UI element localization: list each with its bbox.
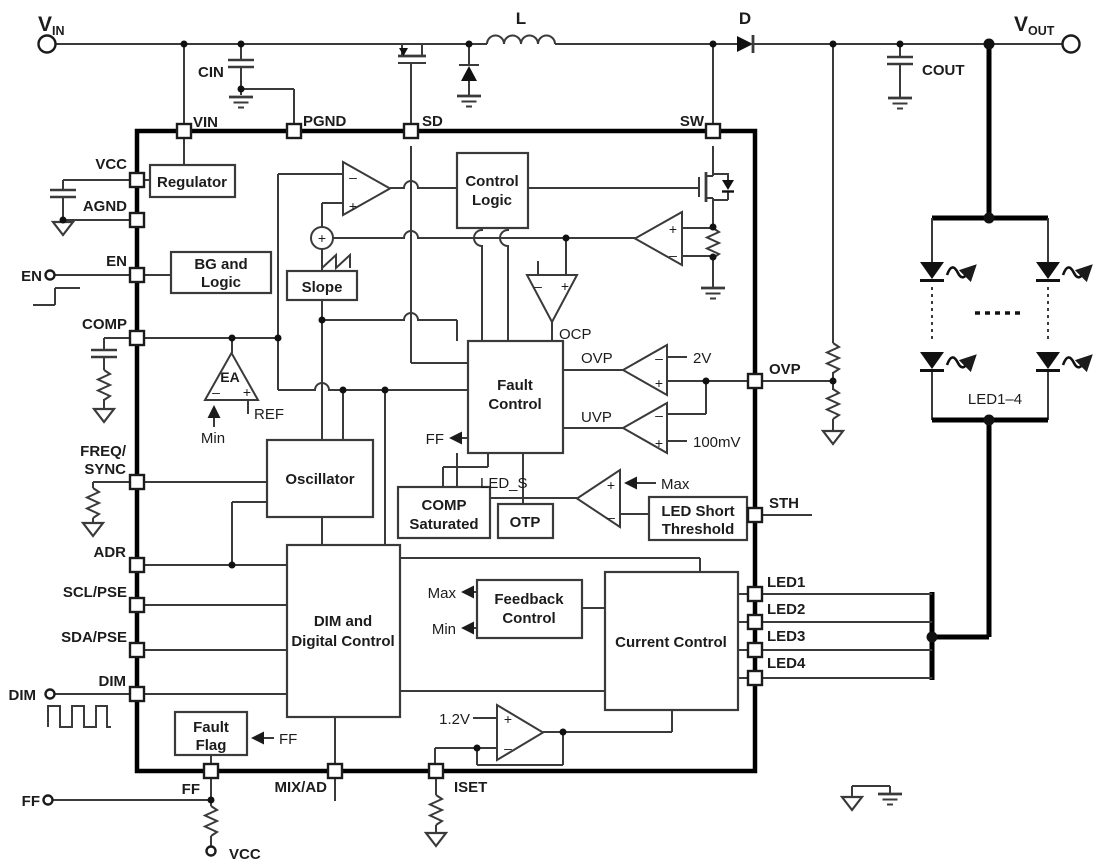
ground-icon xyxy=(457,96,481,107)
led-icon xyxy=(1036,352,1091,371)
plus-mark: + xyxy=(655,375,663,391)
regulator-label: Regulator xyxy=(157,174,227,191)
slope-label: Slope xyxy=(302,279,343,296)
comp-external-network xyxy=(91,338,137,422)
dim-external-network xyxy=(48,694,137,727)
dim-terminal xyxy=(46,690,55,699)
max-fb-label: Max xyxy=(428,585,457,602)
otp-label: OTP xyxy=(510,514,541,531)
schematic-canvas: VIN VOUT L D CIN COUT VIN PGND SD SW VCC… xyxy=(0,0,1100,863)
pin-label-iset: ISET xyxy=(454,779,487,796)
ground-tie-symbol xyxy=(842,786,902,810)
ovp-top-resistor-icon xyxy=(827,343,839,373)
fault-flag-label-1: Fault xyxy=(193,719,229,736)
pin-sth xyxy=(748,508,762,522)
dim-digital-label-1: DIM and xyxy=(314,613,372,630)
pin-label-sd: SD xyxy=(422,113,443,130)
dim-digital-label-2: Digital Control xyxy=(291,633,394,650)
diode-label: D xyxy=(739,9,751,28)
min-ea-label: Min xyxy=(201,430,225,447)
plus-mark: + xyxy=(655,435,663,451)
plus-mark: + xyxy=(243,384,251,400)
oscillator-label: Oscillator xyxy=(285,471,354,488)
pin-label-comp: COMP xyxy=(82,316,127,333)
plus-mark: + xyxy=(504,711,512,727)
inductor-icon xyxy=(487,36,555,45)
pin-led4 xyxy=(748,671,762,685)
pin-label-sth: STH xyxy=(769,495,799,512)
fault-control-label-1: Fault xyxy=(497,377,533,394)
pin-sda-pse xyxy=(130,643,144,657)
ovp-bottom-resistor-icon xyxy=(827,389,839,419)
fault-control-label-2: Control xyxy=(488,396,541,413)
pin-led1 xyxy=(748,587,762,601)
minus-mark: – xyxy=(534,278,542,294)
pin-label-dim: DIM xyxy=(99,673,127,690)
comp-saturated-label-1: COMP xyxy=(422,497,467,514)
pin-label-ovp: OVP xyxy=(769,361,801,378)
led-icon xyxy=(920,352,975,371)
led-icon xyxy=(920,262,975,281)
freq-ground-icon xyxy=(83,523,103,536)
pin-label-sda: SDA/PSE xyxy=(61,629,127,646)
comp-resistor-icon xyxy=(98,370,110,400)
vcc-terminal xyxy=(207,847,216,856)
pin-sw xyxy=(706,124,720,138)
sense-ground-icon xyxy=(701,288,725,299)
minus-mark: – xyxy=(212,384,220,400)
control-logic-block xyxy=(457,153,528,228)
pin-label-led3: LED3 xyxy=(767,628,805,645)
comp-ground-icon xyxy=(94,409,114,422)
pin-agnd xyxy=(130,213,144,227)
pin-pgnd xyxy=(287,124,301,138)
pin-vcc xyxy=(130,173,144,187)
internal-wires xyxy=(137,146,932,765)
minus-mark: – xyxy=(655,350,663,366)
vout-label: VOUT xyxy=(1014,13,1055,38)
ref-label: REF xyxy=(254,406,284,423)
pin-ovp xyxy=(748,374,762,388)
pin-label-vcc: VCC xyxy=(95,156,127,173)
ocp-label: OCP xyxy=(559,326,592,343)
dim-external-label: DIM xyxy=(9,687,37,704)
pin-comp xyxy=(130,331,144,345)
pin-freq-sync xyxy=(130,475,144,489)
control-logic-label-2: Logic xyxy=(472,192,512,209)
iset-ground-icon xyxy=(426,833,446,846)
feedback-label-1: Feedback xyxy=(494,591,564,608)
pin-label-led2: LED2 xyxy=(767,601,805,618)
bg-logic-label-1: BG and xyxy=(194,256,247,273)
freq-resistor-icon xyxy=(87,488,99,518)
plus-mark: + xyxy=(669,221,677,237)
power-ground-icon xyxy=(878,794,902,805)
pin-adr xyxy=(130,558,144,572)
vcc-external-label: VCC xyxy=(229,846,261,863)
ff-out-label: FF xyxy=(426,431,444,448)
rectifier-diode-icon xyxy=(737,35,753,53)
cout-ground-icon xyxy=(888,98,912,109)
cin-label: CIN xyxy=(198,64,224,81)
pin-led3 xyxy=(748,643,762,657)
plus-mark: + xyxy=(561,278,569,294)
led-short-label-2: Threshold xyxy=(662,521,735,538)
inductor-label: L xyxy=(516,9,526,28)
ff-terminal xyxy=(44,796,53,805)
vin-terminal xyxy=(39,36,56,53)
analog-ground-icon xyxy=(842,797,862,810)
pin-label-freq1: FREQ/ xyxy=(80,443,127,460)
iset-resistor-icon xyxy=(430,795,442,825)
cout-label: COUT xyxy=(922,62,965,79)
pin-label-vin: VIN xyxy=(193,114,218,131)
pin-label-scl: SCL/PSE xyxy=(63,584,127,601)
ff-in-label: FF xyxy=(279,731,297,748)
minus-mark: – xyxy=(349,169,357,185)
max-leds-label: Max xyxy=(661,476,690,493)
ff-pullup-resistor-icon xyxy=(205,806,217,836)
vin-label: VIN xyxy=(38,13,65,38)
pin-label-agnd: AGND xyxy=(83,198,127,215)
en-terminal xyxy=(46,271,55,280)
led-array-label: LED1–4 xyxy=(968,391,1022,408)
uvp-ref-label: 100mV xyxy=(693,434,741,451)
vcc-capacitor-icon xyxy=(50,190,76,197)
feedback-label-2: Control xyxy=(502,610,555,627)
led-s-label: LED_S xyxy=(480,475,528,492)
comp-capacitor-icon xyxy=(91,350,117,357)
pin-label-mixad: MIX/AD xyxy=(275,779,328,796)
ff-external-label: FF xyxy=(22,793,40,810)
cin-capacitor-icon xyxy=(228,60,254,67)
pin-iset xyxy=(429,764,443,778)
ovp-signal-label: OVP xyxy=(581,350,613,367)
led-short-label-1: LED Short xyxy=(661,503,734,520)
fault-flag-label-2: Flag xyxy=(196,737,227,754)
pin-label-en: EN xyxy=(106,253,127,270)
sawtooth-icon xyxy=(322,255,350,268)
cin-ground-icon xyxy=(229,97,253,108)
cout-capacitor-icon xyxy=(887,57,913,64)
led-icon xyxy=(1036,262,1091,281)
feedback-control-block xyxy=(477,580,582,638)
block-diagram: VIN VOUT L D CIN COUT VIN PGND SD SW VCC… xyxy=(0,0,1100,863)
iset-external-network xyxy=(426,779,446,846)
pin-sd xyxy=(404,124,418,138)
pin-dim xyxy=(130,687,144,701)
pin-label-pgnd: PGND xyxy=(303,113,347,130)
pin-label-sw: SW xyxy=(680,113,705,130)
vout-terminal xyxy=(1063,36,1080,53)
en-external-label: EN xyxy=(21,268,42,285)
control-logic-label-1: Control xyxy=(465,173,518,190)
dim-digital-control-block xyxy=(287,545,400,717)
led-string-network xyxy=(920,218,1091,680)
minus-mark: – xyxy=(655,407,663,423)
error-amp-label: EA xyxy=(220,369,239,385)
plus-mark: + xyxy=(349,198,357,214)
bg-logic-label-2: Logic xyxy=(201,274,241,291)
pin-led2 xyxy=(748,615,762,629)
plus-mark: + xyxy=(607,477,615,493)
uvp-signal-label: UVP xyxy=(581,409,612,426)
pin-label-led4: LED4 xyxy=(767,655,806,672)
minus-mark: – xyxy=(669,247,677,263)
minus-mark: – xyxy=(504,740,512,756)
pin-label-freq2: SYNC xyxy=(84,461,126,478)
pin-label-adr: ADR xyxy=(94,544,127,561)
current-control-label: Current Control xyxy=(615,634,727,651)
min-fb-label: Min xyxy=(432,621,456,638)
ovp-ground-icon xyxy=(823,431,843,444)
agnd-ground-icon xyxy=(53,222,73,235)
comp-saturated-label-2: Saturated xyxy=(409,516,478,533)
plus-mark: + xyxy=(318,230,326,246)
minus-mark: – xyxy=(607,509,615,525)
pin-ff xyxy=(204,764,218,778)
pin-mix-ad xyxy=(328,764,342,778)
iset-ref-label: 1.2V xyxy=(439,711,470,728)
pin-scl-pse xyxy=(130,598,144,612)
pin-label-led1: LED1 xyxy=(767,574,805,591)
pin-en xyxy=(130,268,144,282)
pin-label-ff: FF xyxy=(182,781,200,798)
pin-vin xyxy=(177,124,191,138)
ovp-ref-label: 2V xyxy=(693,350,711,367)
